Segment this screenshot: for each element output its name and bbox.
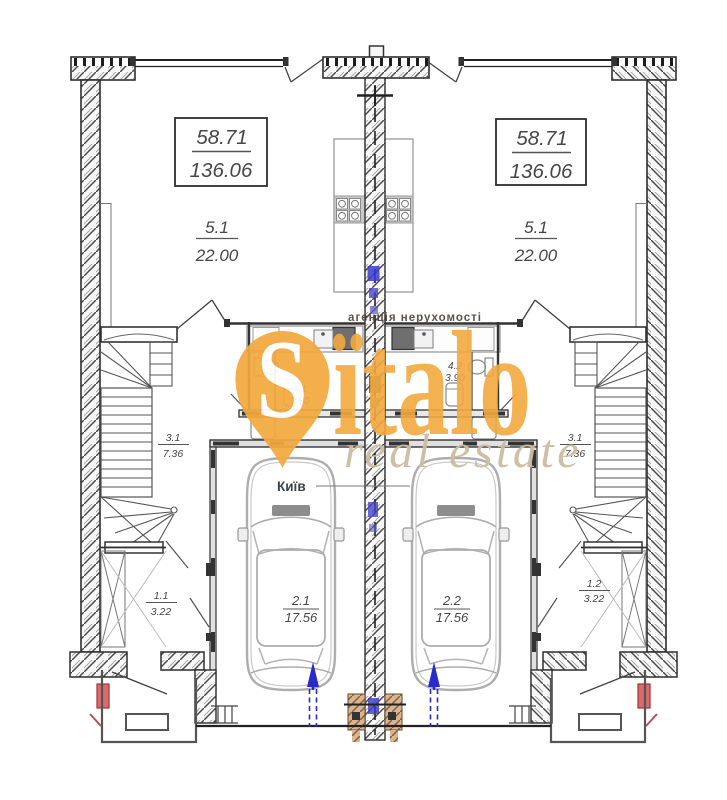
svg-text:17.56: 17.56 xyxy=(285,610,318,625)
svg-text:3.1: 3.1 xyxy=(166,432,181,444)
svg-text:2.2: 2.2 xyxy=(442,593,462,608)
svg-text:S: S xyxy=(256,319,307,443)
svg-text:58.71: 58.71 xyxy=(516,127,567,150)
svg-text:5.1: 5.1 xyxy=(524,218,548,237)
svg-text:22.00: 22.00 xyxy=(195,246,239,265)
svg-text:1.2: 1.2 xyxy=(587,578,602,590)
svg-text:22.00: 22.00 xyxy=(514,246,558,265)
svg-text:3.22: 3.22 xyxy=(584,593,605,605)
svg-text:real estate: real estate xyxy=(344,425,582,478)
svg-text:7.36: 7.36 xyxy=(163,448,184,460)
svg-text:136.06: 136.06 xyxy=(190,159,253,182)
svg-text:17.56: 17.56 xyxy=(436,610,469,625)
svg-text:136.06: 136.06 xyxy=(510,160,573,183)
svg-text:1.1: 1.1 xyxy=(154,590,169,602)
svg-text:2.1: 2.1 xyxy=(291,593,310,608)
svg-text:58.71: 58.71 xyxy=(196,126,247,149)
svg-text:5.1: 5.1 xyxy=(205,218,229,237)
svg-text:Київ: Київ xyxy=(277,479,306,494)
svg-text:3.22: 3.22 xyxy=(151,606,172,618)
